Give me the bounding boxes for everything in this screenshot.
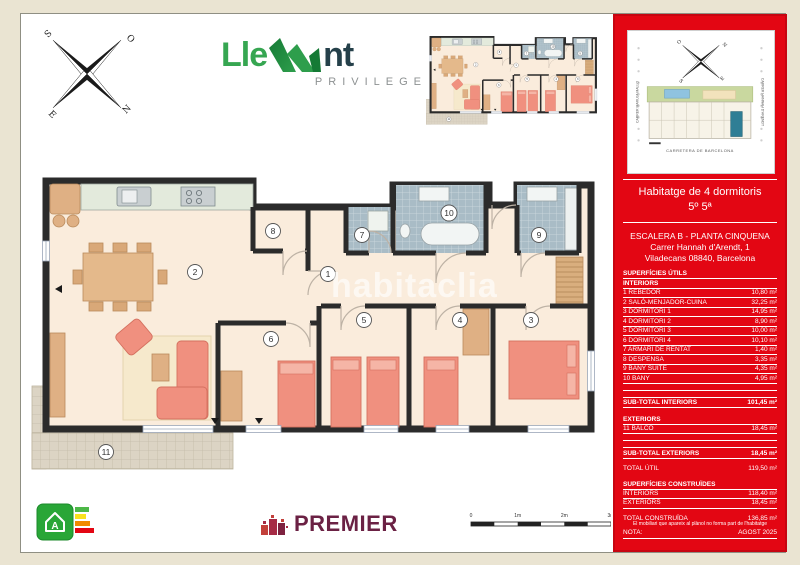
brand-name-left: Lle	[221, 38, 267, 72]
compass-ne-label: O	[124, 33, 135, 45]
blank-ruled-row	[623, 441, 777, 448]
street-bottom-label: CARRETERA DE BARCELONA	[666, 148, 734, 153]
scale-3m: 3m	[608, 513, 611, 519]
building-block-label: ESCALERA B - PLANTA CINQUENA	[623, 231, 777, 242]
street-right-label: CARRER HANNAH D'ARENDT	[760, 78, 764, 127]
scale-1m: 1m	[514, 513, 521, 519]
table-row: EXTERIORS18,45 m²	[623, 499, 777, 508]
scale-0: 0	[470, 513, 473, 519]
blank-ruled-row	[623, 384, 777, 391]
brand-name-right: nt	[323, 38, 353, 72]
premier-logo: PREMIER	[259, 511, 398, 537]
site-compass-nw: O	[676, 39, 683, 46]
table-row: 10 BANY4,95 m²	[623, 374, 777, 383]
table-row: 3 DORMITORI 114,95 m²	[623, 308, 777, 317]
site-compass-sw: S	[677, 78, 684, 85]
city-address: Viladecans 08840, Barcelona	[623, 253, 777, 264]
compass-nw-label: S	[43, 29, 54, 40]
table-row: INTERIORS118,40 m²	[623, 490, 777, 499]
site-plan: O N S E	[628, 31, 772, 171]
page: S O E N Lle nt P	[0, 0, 800, 565]
table-row: 8 DESPENSA3,35 m²	[623, 355, 777, 364]
scale-bar: 0 1m 2m 3m	[461, 506, 611, 536]
table-row: 7 ARMARI DE RENTAT1,40 m²	[623, 346, 777, 355]
compass-rose-icon: S O E N	[39, 26, 135, 122]
surfaces-title: SUPERFÍCIES ÚTILS	[623, 270, 687, 277]
table-row: 6 DORMITORI 410,10 m²	[623, 336, 777, 345]
divider	[623, 222, 777, 223]
site-compass-ne: N	[721, 42, 728, 49]
habitaclia-watermark: habitaclia	[331, 267, 498, 306]
energy-letter: A	[51, 521, 58, 532]
subtotal-exteriors-row: SUB-TOTAL EXTERIORS18,45 m²	[623, 448, 777, 459]
blank-ruled-row	[623, 391, 777, 398]
energy-certificate-icon: A	[36, 499, 100, 545]
street-address: Carrer Hannah d'Arendt, 1	[623, 242, 777, 253]
built-surfaces-header: SUPERFÍCIES CONSTRUÏDES	[623, 481, 715, 488]
subtotal-interiors-row: SUB-TOTAL INTERIORS101,45 m²	[623, 398, 777, 409]
brand-logo: Lle nt PRIVILEGE	[221, 36, 431, 88]
sidebar-footnote: El mobiliari que apareix al plànol no fo…	[623, 521, 777, 527]
table-row: 1 REBEDOR10,80 m²	[623, 289, 777, 298]
table-row: 2 SALÓ-MENJADOR-CUINA32,25 m²	[623, 298, 777, 307]
sidebar-subtitle: 5º 5ª	[623, 200, 777, 214]
table-row: 5 DORMITORI 310,00 m²	[623, 327, 777, 336]
brand-tagline: PRIVILEGE	[221, 76, 431, 88]
table-row: 4 DORMITORI 28,90 m²	[623, 317, 777, 326]
compass-sw-label: E	[46, 109, 58, 121]
main-floorplan: 1 2 3 4 5 6 7 8 9 10 11	[31, 171, 611, 471]
info-sidebar: O N S E	[613, 14, 787, 552]
compass-se-label: N	[121, 103, 134, 116]
blank-ruled-row	[623, 434, 777, 441]
table-row: 9 BANY SUITE4,35 m²	[623, 365, 777, 374]
interiors-header: INTERIORS	[623, 280, 658, 287]
exteriors-header: EXTERIORS	[623, 416, 661, 423]
premier-icon	[259, 511, 289, 537]
mini-floorplan	[426, 34, 602, 125]
table-row: 11 BALCÓ18,45 m²	[623, 425, 777, 434]
total-util-row: TOTAL ÚTIL119,50 m²	[623, 465, 777, 473]
address-block: ESCALERA B - PLANTA CINQUENA Carrer Hann…	[623, 231, 777, 264]
site-compass-se: E	[719, 75, 726, 82]
sidebar-title: Habitatge de 4 dormitoris	[623, 179, 777, 199]
street-left-label: CARRER MARUJA MALLO	[636, 81, 640, 123]
plan-sheet: S O E N Lle nt P	[20, 13, 786, 553]
premier-name: PREMIER	[294, 511, 398, 537]
site-plan-box: O N S E	[627, 30, 775, 174]
nota-row: NOTA:AGOST 2025	[623, 529, 777, 538]
scale-2m: 2m	[561, 513, 568, 519]
brand-mark-icon	[269, 36, 321, 72]
surfaces-table: SUPERFÍCIES ÚTILS INTERIORS 1 REBEDOR10,…	[623, 268, 777, 539]
